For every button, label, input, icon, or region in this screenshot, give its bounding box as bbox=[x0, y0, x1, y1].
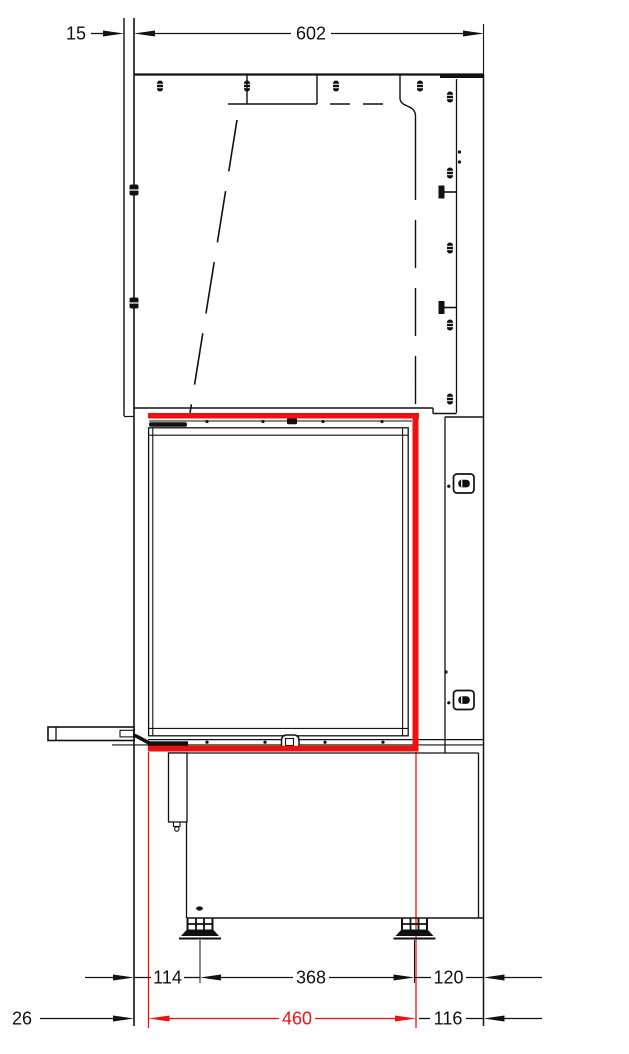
hinge-column bbox=[444, 417, 478, 918]
wall-bolt-icon bbox=[130, 185, 139, 196]
dimension-top-row: 15 602 bbox=[66, 24, 484, 75]
technical-drawing-fireplace-side-section: 15 602 114 368 120 26 460 116 bbox=[0, 0, 629, 1054]
handle-slot bbox=[120, 730, 134, 737]
dim-368-label: 368 bbox=[296, 968, 326, 988]
wall-bolt-icon bbox=[130, 298, 139, 309]
screw-icon bbox=[333, 81, 339, 92]
screw-icon bbox=[417, 81, 423, 92]
dim-116-label: 116 bbox=[434, 1009, 463, 1029]
door-hinge-icon bbox=[454, 691, 475, 710]
door-frame bbox=[149, 428, 409, 736]
bottom-sill bbox=[112, 735, 484, 747]
base-pedestal bbox=[169, 753, 484, 939]
t-bolt-icon bbox=[439, 186, 457, 199]
flue-collar-recess bbox=[228, 75, 416, 153]
dim-114-label: 114 bbox=[153, 968, 182, 988]
dim-15-label: 15 bbox=[66, 24, 86, 44]
dim-602-label: 602 bbox=[296, 24, 326, 44]
left-wall-panel bbox=[124, 18, 139, 1026]
screw-icon bbox=[447, 92, 453, 103]
dimension-feet-row: 114 368 120 bbox=[85, 940, 542, 988]
firebox-door bbox=[149, 418, 412, 736]
drawing-canvas: 15 602 114 368 120 26 460 116 bbox=[0, 0, 629, 1054]
base-screw bbox=[196, 906, 203, 910]
door-latch-catch bbox=[282, 735, 300, 746]
screw-icon bbox=[447, 243, 453, 254]
door-handle bbox=[48, 727, 151, 744]
dim-26-label: 26 bbox=[12, 1009, 32, 1029]
adjustable-foot-icon bbox=[179, 919, 221, 939]
screw-icon bbox=[447, 394, 453, 405]
dim-120-label: 120 bbox=[433, 968, 463, 988]
door-swing-hidden-line bbox=[190, 120, 237, 413]
door-hinge-icon bbox=[454, 474, 475, 493]
adjustable-foot-icon bbox=[394, 919, 436, 939]
screw-icon bbox=[447, 320, 453, 331]
screw-icon bbox=[157, 81, 163, 92]
dimension-opening-row: 26 460 116 bbox=[12, 1009, 542, 1029]
t-bolt-icon bbox=[439, 301, 457, 314]
top-rear-reinforcement bbox=[440, 74, 484, 79]
screw-icon bbox=[447, 168, 453, 179]
rear-panel-fasteners bbox=[439, 92, 462, 405]
air-control-bracket bbox=[169, 753, 188, 822]
dim-460-label: 460 bbox=[282, 1009, 312, 1029]
latch-keeper bbox=[287, 418, 297, 424]
hinge-plate bbox=[148, 741, 188, 746]
door-top-bar bbox=[149, 422, 187, 426]
